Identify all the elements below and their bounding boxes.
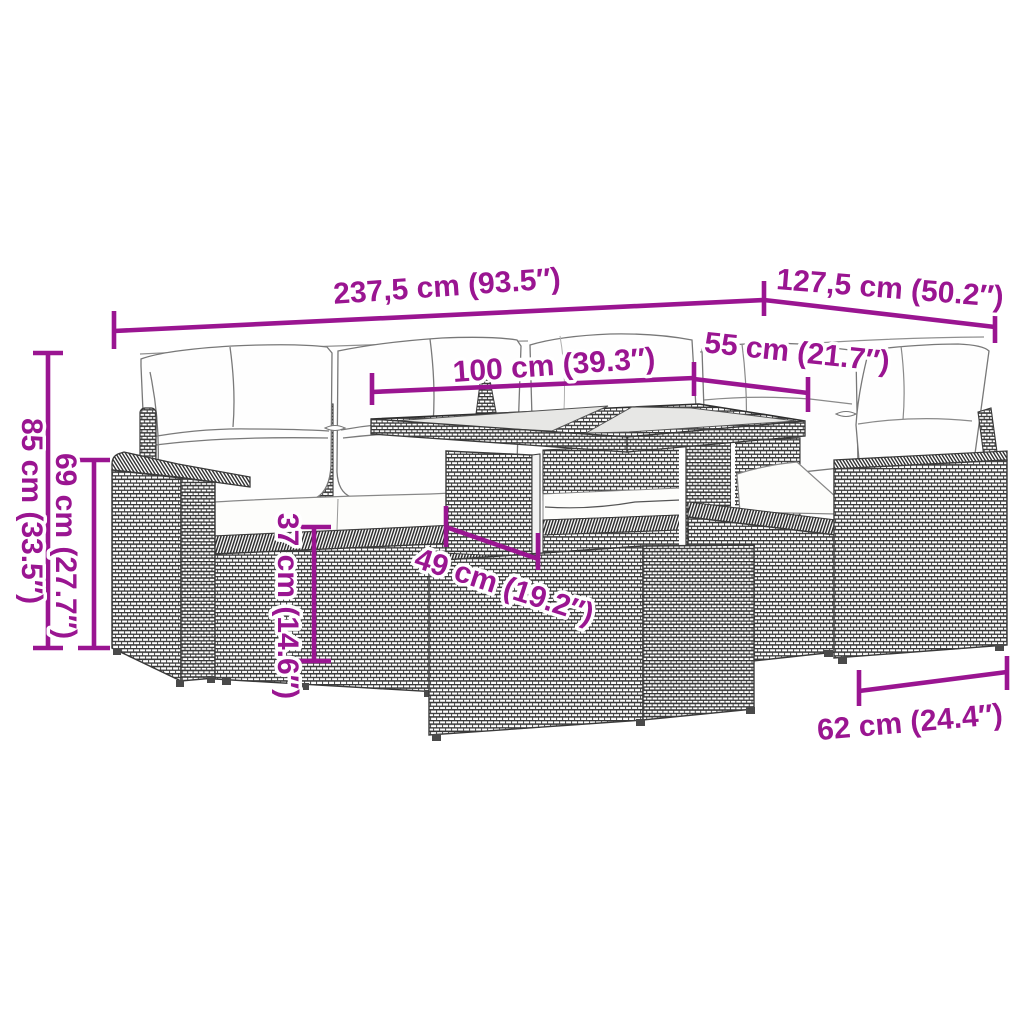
svg-text:69 cm (27.7″): 69 cm (27.7″) <box>49 453 82 639</box>
svg-text:85 cm (33.5″): 85 cm (33.5″) <box>15 418 48 604</box>
svg-text:37 cm (14.6″): 37 cm (14.6″) <box>271 513 304 699</box>
